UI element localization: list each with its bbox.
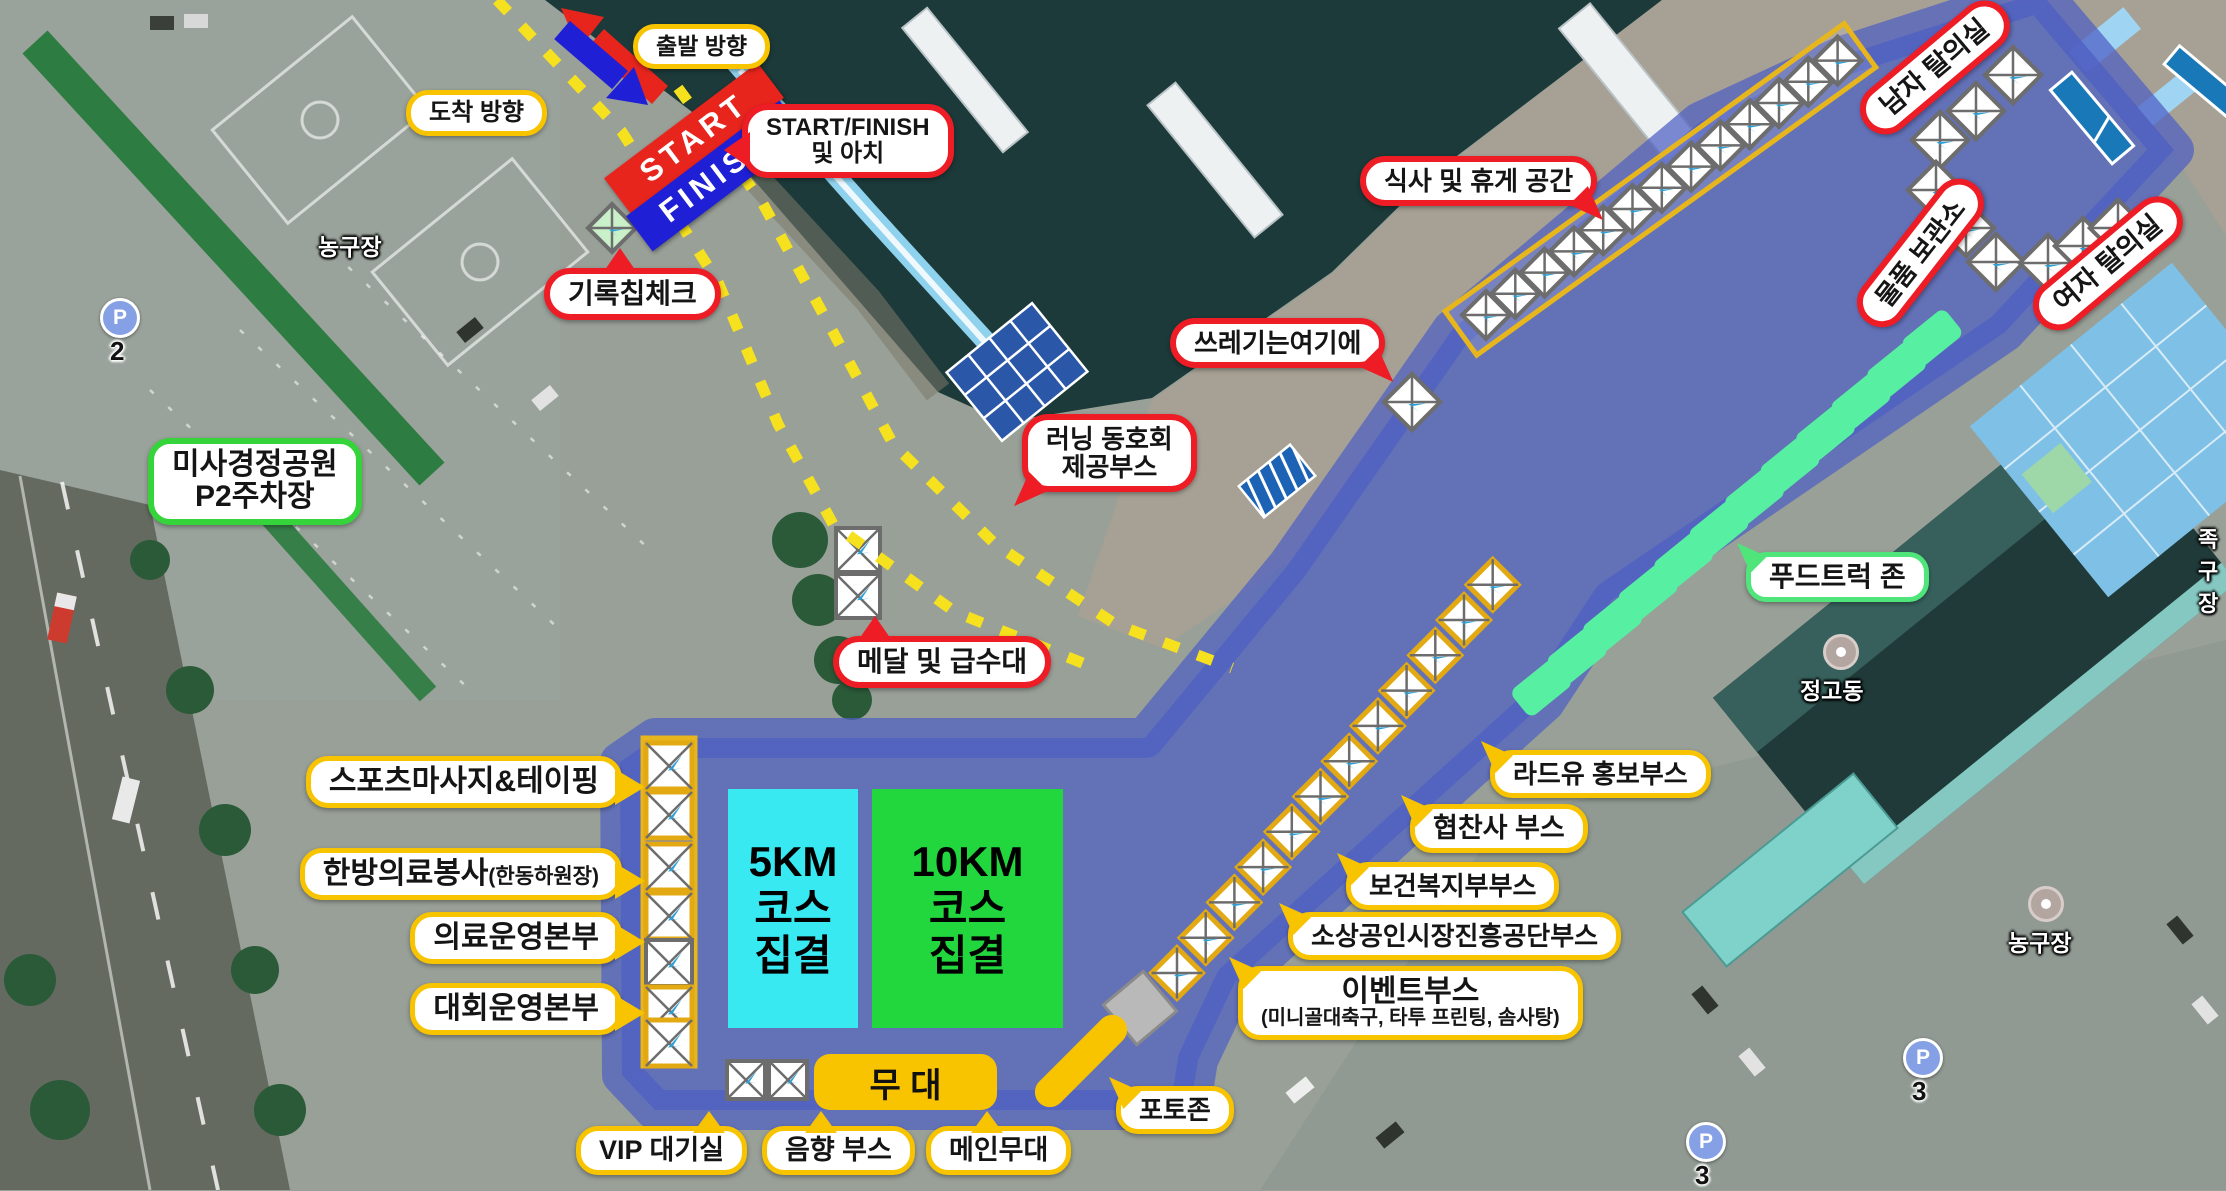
callout-arrive-direction: 도착 방향 xyxy=(406,90,547,136)
callout-vip-room: VIP 대기실 xyxy=(576,1126,747,1175)
parking-number-3: 3 xyxy=(1912,1076,1926,1107)
callout-small-biz-booth: 소상공인시장진흥공단부스 xyxy=(1288,912,1621,960)
callout-parking-p2: 미사경정공원 P2주차장 xyxy=(148,438,362,525)
photo-zone-label: 포토존 xyxy=(1139,1096,1211,1124)
zone-10km-line2: 코스 xyxy=(929,885,1006,932)
stage-block: 무 대 xyxy=(814,1054,997,1110)
sports-massage-label: 스포츠마사지&테이핑 xyxy=(329,766,599,798)
callout-start-finish-arch: START/FINISH 및 아치 xyxy=(742,104,954,178)
running-club-line2: 제공부스 xyxy=(1062,453,1158,481)
event-hq-label: 대회운영본부 xyxy=(433,993,599,1025)
arch-line1: START/FINISH xyxy=(766,115,930,141)
medical-hq-label: 의료운영본부 xyxy=(433,922,599,954)
callout-main-stage: 메인무대 xyxy=(926,1126,1071,1175)
small-biz-label: 소상공인시장진흥공단부스 xyxy=(1311,922,1598,950)
tent-icon xyxy=(727,1061,765,1099)
chip-check-label: 기록칩체크 xyxy=(568,279,697,309)
oriental-medical-label: 한방의료봉사 xyxy=(323,858,489,890)
zone-5km-line2: 코스 xyxy=(754,885,831,932)
callout-depart-direction: 출발 방향 xyxy=(633,24,770,69)
radyu-label: 라드유 홍보부스 xyxy=(1513,760,1688,788)
callout-medal-water: 메달 및 급수대 xyxy=(833,636,1051,688)
tent-icon xyxy=(646,844,692,890)
callout-event-hq: 대회운영본부 xyxy=(410,983,622,1035)
tent-icon xyxy=(769,1061,807,1099)
trash-label: 쓰레기는여기에 xyxy=(1194,329,1361,357)
callout-event-booth: 이벤트부스 (미니골대축구, 타투 프린팅, 솜사탕) xyxy=(1238,966,1583,1040)
map-marker-basketball xyxy=(2028,886,2064,922)
parking-line2: P2주차장 xyxy=(195,481,315,513)
callout-oriental-medical: 한방의료봉사 (한동하원장) xyxy=(300,848,622,900)
zone-5km-line3: 집결 xyxy=(754,932,831,979)
parking-number-2: 2 xyxy=(110,336,124,367)
map-label-basketball-top: 농구장 xyxy=(318,228,381,262)
callout-sound-booth: 음향 부스 xyxy=(762,1126,915,1175)
map-marker-jeonggodong xyxy=(1823,634,1859,670)
tent-icon xyxy=(646,1020,692,1066)
food-truck-label: 푸드트럭 존 xyxy=(1769,562,1906,592)
oriental-medical-paren: (한동하원장) xyxy=(488,866,599,889)
parking-marker-p2: P xyxy=(100,298,140,338)
main-stage-label: 메인무대 xyxy=(949,1136,1048,1165)
map-label-jeonggodong: 정고동 xyxy=(1800,672,1863,706)
callout-running-club: 러닝 동호회 제공부스 xyxy=(1022,414,1197,492)
arrive-label: 도착 방향 xyxy=(429,100,524,126)
tent-icon xyxy=(836,574,880,618)
parking-line1: 미사경정공원 xyxy=(172,449,338,481)
map-label-edge-partial: 족구장 xyxy=(2198,522,2226,618)
callout-medical-hq: 의료운영본부 xyxy=(410,912,622,964)
callout-trash: 쓰레기는여기에 xyxy=(1170,318,1385,368)
welfare-label: 보건복지부부스 xyxy=(1369,872,1536,900)
medal-water-label: 메달 및 급수대 xyxy=(857,647,1027,677)
event-map: { "colors": { "callout_red": "#ee1c25", … xyxy=(0,0,2226,1190)
tent-icon xyxy=(646,940,692,986)
depart-label: 출발 방향 xyxy=(656,34,747,59)
callout-chip-check: 기록칩체크 xyxy=(544,268,721,320)
callout-welfare-booth: 보건복지부부스 xyxy=(1346,862,1559,910)
parking-marker-p3: P xyxy=(1686,1122,1726,1162)
zone-10km-line1: 10KM xyxy=(911,838,1023,885)
zone-10km-line3: 집결 xyxy=(929,932,1006,979)
tent-icon xyxy=(646,743,692,789)
event-booth-line2: (미니골대축구, 타투 프린팅, 솜사탕) xyxy=(1261,1008,1560,1030)
running-club-line1: 러닝 동호회 xyxy=(1046,425,1173,453)
callout-radyu-booth: 라드유 홍보부스 xyxy=(1490,750,1711,798)
map-label-basketball-right: 농구장 xyxy=(2008,924,2071,958)
callout-sports-massage: 스포츠마사지&테이핑 xyxy=(306,756,622,808)
callout-sponsor-booth: 협찬사 부스 xyxy=(1410,804,1588,853)
callout-meal-rest: 식사 및 휴게 공간 xyxy=(1360,156,1597,206)
callout-photo-zone: 포토존 xyxy=(1116,1086,1234,1134)
parking-number-3: 3 xyxy=(1695,1160,1709,1191)
parking-marker-p3: P xyxy=(1903,1038,1943,1078)
event-booth-line1: 이벤트부스 xyxy=(1341,976,1479,1008)
callout-food-truck-zone: 푸드트럭 존 xyxy=(1746,552,1929,602)
meal-rest-label: 식사 및 휴게 공간 xyxy=(1384,167,1573,195)
arch-line2: 및 아치 xyxy=(811,141,884,167)
tent-icon xyxy=(646,893,692,939)
sound-label: 음향 부스 xyxy=(785,1136,892,1165)
zone-5km: 5KM 코스 집결 xyxy=(728,789,858,1028)
zone-10km: 10KM 코스 집결 xyxy=(872,789,1063,1028)
tent-icon xyxy=(646,792,692,838)
sponsor-label: 협찬사 부스 xyxy=(1433,814,1565,843)
zone-5km-line1: 5KM xyxy=(749,838,838,885)
tent-icon xyxy=(836,528,880,572)
vip-label: VIP 대기실 xyxy=(599,1136,724,1165)
